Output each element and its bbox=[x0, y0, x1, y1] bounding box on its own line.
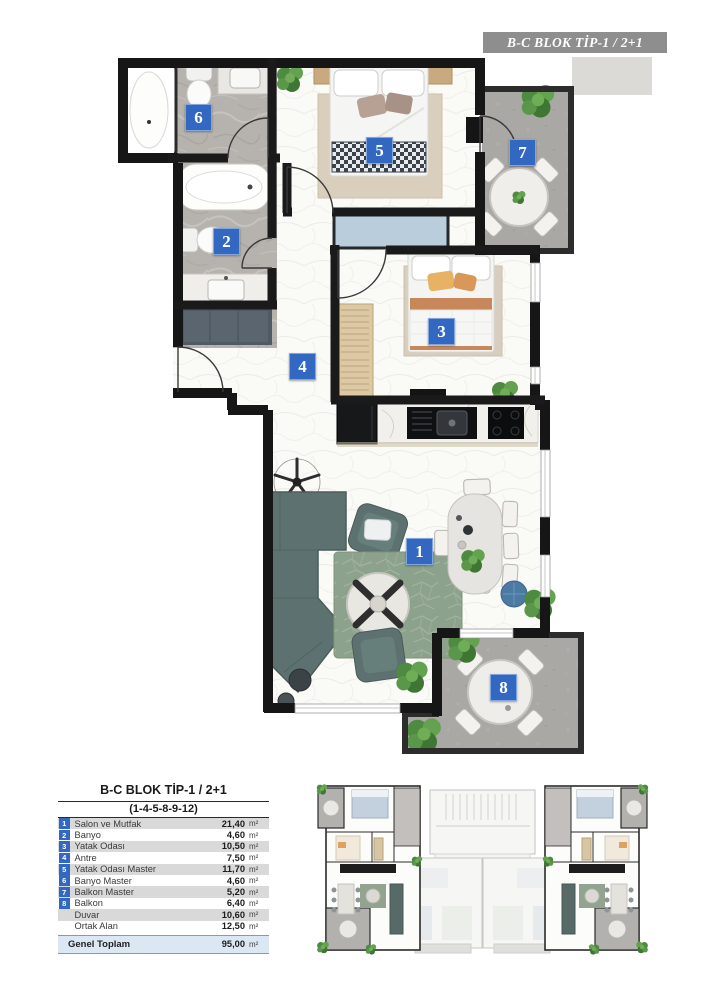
legend-row-number: 2 bbox=[59, 830, 70, 841]
legend-total-row: Genel Toplam 95,00 m² bbox=[58, 935, 269, 954]
plan-title: B-C BLOK TİP-1 / 2+1 bbox=[483, 32, 667, 53]
mini-sofa bbox=[390, 884, 403, 934]
legend-row-label: Yatak Odası Master bbox=[75, 864, 212, 874]
refrigerator bbox=[337, 402, 377, 444]
legend-row-unit: m² bbox=[245, 876, 269, 885]
total-label: Genel Toplam bbox=[58, 939, 211, 950]
legend-row-label: Antre bbox=[75, 853, 212, 863]
legend-row-unit: m² bbox=[245, 899, 269, 908]
room-badge-6: 6 bbox=[185, 104, 212, 131]
legend-row: 1Salon ve Mutfak21,40m² bbox=[58, 818, 269, 829]
legend-row-number bbox=[59, 921, 70, 932]
room-badge-5: 5 bbox=[366, 137, 393, 164]
built-in-wardrobe bbox=[334, 214, 448, 248]
cooktop bbox=[488, 407, 524, 439]
blanket-stripe bbox=[410, 298, 492, 310]
legend-row-unit: m² bbox=[245, 922, 269, 931]
mini-kitchen bbox=[340, 864, 396, 873]
kitchen bbox=[337, 402, 538, 447]
legend-row-value: 7,50 bbox=[211, 853, 245, 863]
legend-row-unit: m² bbox=[245, 865, 269, 874]
pillow bbox=[334, 70, 378, 96]
legend-row-number bbox=[59, 910, 70, 921]
side-table bbox=[289, 669, 311, 691]
legend-row-value: 11,70 bbox=[211, 864, 245, 874]
dining-chair bbox=[502, 501, 518, 527]
legend-row-value: 10,60 bbox=[211, 910, 245, 920]
legend-row-label: Balkon Master bbox=[75, 887, 212, 897]
room-badge-8: 8 bbox=[490, 674, 517, 701]
legend-row-value: 21,40 bbox=[211, 819, 245, 829]
legend-row-value: 4,60 bbox=[211, 830, 245, 840]
legend-row-number: 7 bbox=[59, 887, 70, 898]
legend-row-number: 4 bbox=[59, 853, 70, 864]
area-legend: B-C BLOK TİP-1 / 2+1 (1-4-5-8-9-12) 1Sal… bbox=[58, 781, 269, 954]
legend-row: 4Antre7,50m² bbox=[58, 852, 269, 863]
key-plan bbox=[317, 784, 648, 954]
dining-table bbox=[448, 494, 502, 594]
legend-row-number: 3 bbox=[59, 841, 70, 852]
room-badge-7: 7 bbox=[509, 139, 536, 166]
room-badge-1: 1 bbox=[406, 538, 433, 565]
legend-row-value: 6,40 bbox=[211, 898, 245, 908]
legend-row-unit: m² bbox=[245, 910, 269, 919]
legend-rows: 1Salon ve Mutfak21,40m²2Banyo4,60m²3Yata… bbox=[58, 818, 269, 932]
legend-row: 2Banyo4,60m² bbox=[58, 829, 269, 840]
dining-chair bbox=[503, 533, 519, 559]
legend-row-unit: m² bbox=[245, 831, 269, 840]
legend-row-unit: m² bbox=[245, 853, 269, 862]
legend-row-value: 4,60 bbox=[211, 876, 245, 886]
room-badge-2: 2 bbox=[213, 228, 240, 255]
room-badge-4: 4 bbox=[289, 353, 316, 380]
wardrobe bbox=[337, 304, 373, 402]
legend-row: 8Balkon6,40m² bbox=[58, 898, 269, 909]
floorplan-page: B-C BLOK TİP-1 / 2+1 1 2 3 4 5 6 7 8 B-C… bbox=[0, 0, 707, 1000]
legend-row-unit: m² bbox=[245, 842, 269, 851]
legend-row-number: 1 bbox=[59, 818, 70, 829]
legend-row-unit: m² bbox=[245, 888, 269, 897]
pillow bbox=[382, 70, 424, 96]
dining-chair bbox=[435, 530, 450, 555]
dining-chair bbox=[464, 479, 491, 495]
legend-row-value: 5,20 bbox=[211, 887, 245, 897]
legend-row-label: Duvar bbox=[75, 910, 212, 920]
legend-row: Duvar10,60m² bbox=[58, 909, 269, 920]
legend-row: 7Balkon Master5,20m² bbox=[58, 886, 269, 897]
legend-row-number: 6 bbox=[59, 875, 70, 886]
legend-row-value: 12,50 bbox=[211, 921, 245, 931]
legend-row-label: Salon ve Mutfak bbox=[75, 819, 212, 829]
adjacent-structure bbox=[572, 57, 652, 95]
legend-row-value: 10,50 bbox=[211, 841, 245, 851]
accent-pillow bbox=[427, 270, 455, 291]
room-badge-3: 3 bbox=[428, 318, 455, 345]
legend-row: 6Banyo Master4,60m² bbox=[58, 875, 269, 886]
legend-row-number: 8 bbox=[59, 898, 70, 909]
legend-header: B-C BLOK TİP-1 / 2+1 bbox=[58, 781, 269, 802]
legend-row: Ortak Alan12,50m² bbox=[58, 921, 269, 932]
legend-row-label: Banyo Master bbox=[75, 876, 212, 886]
legend-row-label: Yatak Odası bbox=[75, 841, 212, 851]
legend-row-unit: m² bbox=[245, 819, 269, 828]
legend-row-number: 5 bbox=[59, 864, 70, 875]
legend-row: 3Yatak Odası10,50m² bbox=[58, 841, 269, 852]
legend-subheader: (1-4-5-8-9-12) bbox=[58, 802, 269, 818]
legend-row-label: Balkon bbox=[75, 898, 212, 908]
legend-row-label: Banyo bbox=[75, 830, 212, 840]
legend-row-label: Ortak Alan bbox=[75, 921, 212, 931]
total-value: 95,00 bbox=[211, 939, 245, 949]
total-unit: m² bbox=[245, 940, 269, 949]
legend-row: 5Yatak Odası Master11,70m² bbox=[58, 864, 269, 875]
